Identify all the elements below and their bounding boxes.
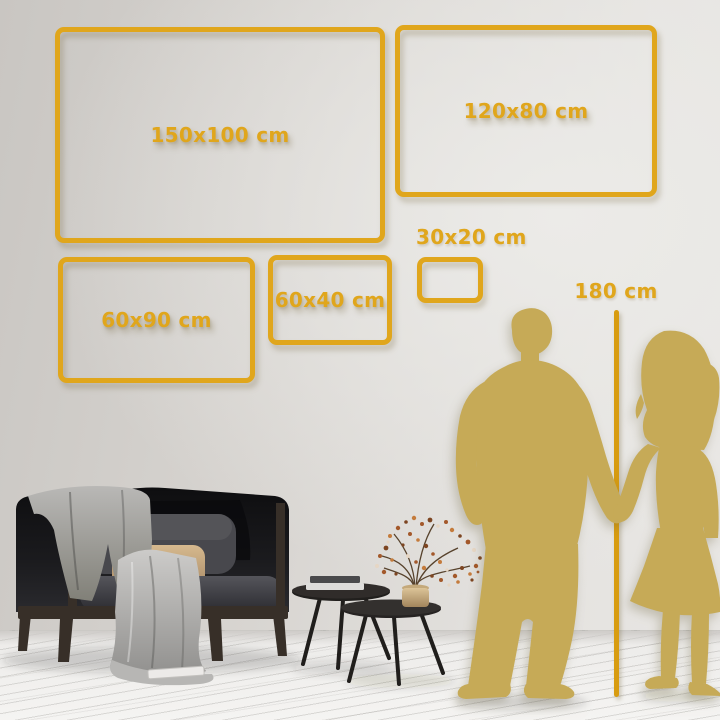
height-reference-label: 180 cm [568, 279, 664, 303]
wood-floor [0, 630, 720, 720]
height-reference-pole [614, 310, 619, 697]
size-label-120x80: 120x80 cm [464, 99, 589, 123]
size-label-30x20: 30x20 cm [416, 225, 527, 249]
size-frame-120x80: 120x80 cm [395, 25, 657, 197]
size-label-150x100: 150x100 cm [150, 123, 289, 147]
size-guide-poster: 150x100 cm 120x80 cm 60x90 cm 60x40 cm 3… [0, 0, 720, 720]
size-frame-150x100: 150x100 cm [55, 27, 385, 243]
size-frame-30x20 [417, 257, 483, 303]
size-label-60x90: 60x90 cm [101, 308, 212, 332]
size-label-60x40: 60x40 cm [275, 288, 386, 312]
size-frame-60x40: 60x40 cm [268, 255, 392, 345]
size-frame-60x90: 60x90 cm [58, 257, 255, 383]
